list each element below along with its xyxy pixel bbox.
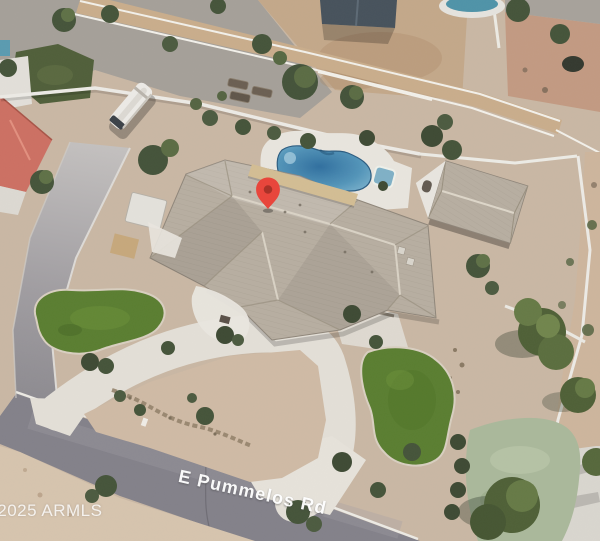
aerial-image bbox=[0, 0, 600, 541]
watermark: © 2025 ARMLS bbox=[0, 501, 102, 521]
listing-photo: E Pummelos Rd © 2025 ARMLS bbox=[0, 0, 600, 541]
